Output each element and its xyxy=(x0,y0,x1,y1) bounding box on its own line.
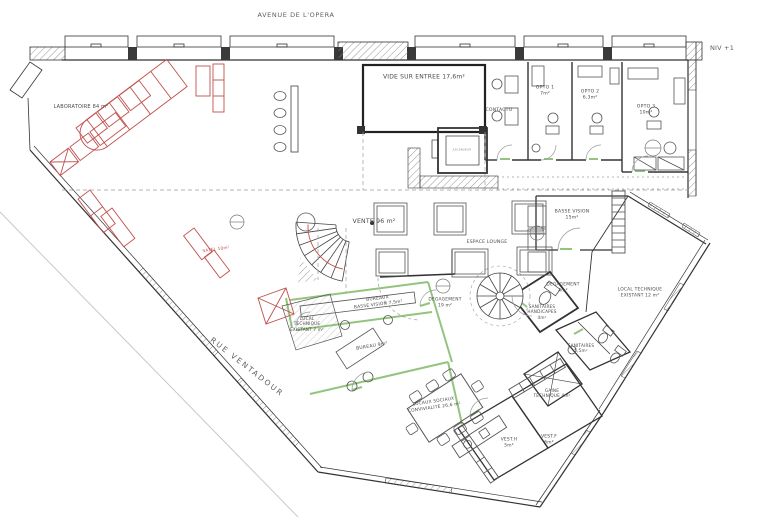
room-label-opto2: OPTO 2 6,3m² xyxy=(581,89,599,100)
room-label-vest-h: VEST.H 5m² xyxy=(501,438,518,449)
room-label-local-technique-12: LOCAL TECHNIQUE EXISTANT 12 m² xyxy=(618,288,663,299)
room-label-espace-lounge: ESPACE LOUNGE xyxy=(467,240,508,246)
wall-left-diagonal xyxy=(0,146,322,517)
room-label-gaine-technique: GAINE TECHNIQUE 4m² xyxy=(533,388,570,399)
height-marker-symbols xyxy=(230,140,661,293)
room-label-local-technique-7: LOCAL TECHNIQUE EXISTANT 7 m² xyxy=(290,316,324,332)
room-label-ascenseur: ASCENSEUR xyxy=(453,148,472,151)
room-label-opto1: OPTO 1 7m² xyxy=(536,85,554,96)
level-label: NIV +1 xyxy=(710,44,734,52)
room-label-degagement-19: DEGAGEMENT 19 m² xyxy=(428,298,461,309)
partitions-green xyxy=(286,159,645,424)
room-label-vente: VENTE 96 m² xyxy=(353,218,396,226)
room-label-laboratoire: LABORATOIRE 84 m² xyxy=(54,104,109,110)
lab-equipment-red xyxy=(50,59,343,324)
room-label-contacto: CONTACTO xyxy=(486,108,513,114)
room-label-sanitaires: SANITAIRES 5,5m² xyxy=(568,343,595,354)
dashed-reference-lines xyxy=(62,132,688,292)
room-label-degagement-4: DEGAGEMENT 4m² xyxy=(546,283,579,294)
room-label-basse-vision: BASSE VISION 15m² xyxy=(555,209,590,220)
room-label-vide-entree: VIDE SUR ENTREE 17,6m² xyxy=(383,73,465,81)
room-label-vest-f: VEST.F 6m² xyxy=(541,435,557,446)
room-label-sanitaires-handicapes: SANITAIRES HANDICAPES 4m² xyxy=(527,304,556,320)
room-label-opto3: OPTO 3 10m² xyxy=(637,104,655,115)
floor-plan-sheet: AVENUE DE L'OPERA NIV +1 RUE VENTADOUR L… xyxy=(0,0,768,517)
wall-right xyxy=(688,42,696,198)
street-label-avenue-opera: AVENUE DE L'OPERA xyxy=(257,11,334,19)
